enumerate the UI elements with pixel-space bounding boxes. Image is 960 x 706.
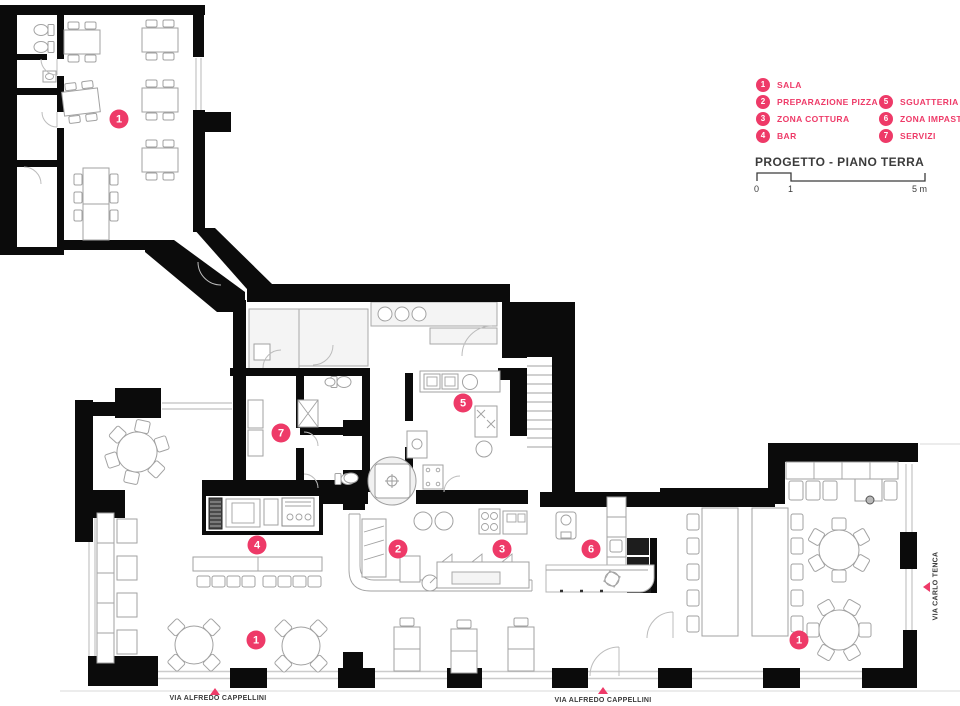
- stairs: [527, 357, 552, 458]
- legend-item-sala: 1 SALA: [756, 78, 802, 92]
- round-table: [100, 414, 174, 490]
- legend-label-zona-cottura: ZONA COTTURA: [777, 114, 849, 124]
- legend-label-bar: BAR: [777, 131, 797, 141]
- street-label-via-alfredo-cappellini-left: VIA ALFREDO CAPPELLINI: [169, 695, 266, 702]
- street-label-via-alfredo-cappellini-center: VIA ALFREDO CAPPELLINI: [554, 697, 651, 704]
- legend-num-4: 4: [756, 129, 770, 143]
- legend-label-zona-impasti: ZONA IMPASTI: [900, 114, 960, 124]
- svg-text:1: 1: [253, 635, 259, 647]
- legend-item-zona-cottura: 3 ZONA COTTURA: [756, 112, 849, 126]
- bar-counter: [206, 496, 319, 531]
- svg-text:6: 6: [588, 544, 594, 556]
- scale-1: 1: [788, 184, 793, 194]
- room-marker: 5: [454, 394, 473, 413]
- dining-room-1-furniture: [34, 20, 178, 240]
- bench: [97, 513, 114, 663]
- legend-num-5: 5: [879, 95, 893, 109]
- legend-label-sala: SALA: [777, 80, 802, 90]
- legend-item-preparazione-pizza: 2 PREPARAZIONE PIZZA: [756, 95, 878, 109]
- room-marker: 3: [493, 540, 512, 559]
- stove-icon: [479, 509, 500, 534]
- high-table: [193, 557, 322, 571]
- long-table: [702, 508, 738, 636]
- svg-text:7: 7: [278, 428, 284, 440]
- room-marker: 7: [272, 424, 291, 443]
- scale-0: 0: [754, 184, 759, 194]
- toilet-icon: [34, 25, 54, 36]
- round-table: [796, 587, 882, 674]
- toilet-icon: [34, 42, 54, 53]
- room-marker: 1: [110, 110, 129, 129]
- page-title: PROGETTO - PIANO TERRA: [755, 155, 924, 169]
- room-marker: 2: [389, 540, 408, 559]
- legend-item-sguatteria: 5 SGUATTERIA: [879, 95, 959, 109]
- legend-label-sguatteria: SGUATTERIA: [900, 97, 959, 107]
- legend-num-6: 6: [879, 112, 893, 126]
- legend-num-3: 3: [756, 112, 770, 126]
- legend-label-servizi: SERVIZI: [900, 131, 936, 141]
- round-table: [808, 518, 870, 582]
- svg-text:3: 3: [499, 544, 505, 556]
- svg-text:2: 2: [395, 544, 401, 556]
- scale-5m: 5 m: [912, 184, 927, 194]
- room-fills: [249, 302, 497, 369]
- long-table: [74, 168, 118, 240]
- scale-bar: 0 1 5 m: [754, 173, 927, 194]
- room-marker: 4: [248, 536, 267, 555]
- room-marker: 1: [247, 631, 266, 650]
- round-table: [167, 618, 221, 672]
- floor-plan-page: 1 7 5 4 2 3 6 1 1 0 1 5 m 1 SALA 2 PREPA…: [0, 0, 960, 706]
- svg-text:1: 1: [116, 114, 122, 126]
- room-marker: 1: [790, 631, 809, 650]
- legend-label-preparazione-pizza: PREPARAZIONE PIZZA: [777, 97, 878, 107]
- legend-item-bar: 4 BAR: [756, 129, 797, 143]
- legend-num-1: 1: [756, 78, 770, 92]
- legend-item-zona-impasti: 6 ZONA IMPASTI: [879, 112, 960, 126]
- room-marker: 6: [582, 540, 601, 559]
- legend-item-servizi: 7 SERVIZI: [879, 129, 936, 143]
- impasti-fixtures: [546, 497, 654, 593]
- svg-text:1: 1: [796, 635, 802, 647]
- street-label-via-carlo-tenca: VIA CARLO TENCA: [933, 552, 940, 621]
- long-table: [752, 508, 788, 636]
- legend-num-2: 2: [756, 95, 770, 109]
- round-table: [274, 619, 328, 673]
- entrance-arrow-icon: [923, 582, 930, 592]
- svg-text:5: 5: [460, 398, 466, 410]
- dining-left-furniture: [97, 414, 534, 673]
- legend-num-7: 7: [879, 129, 893, 143]
- svg-text:4: 4: [254, 540, 261, 552]
